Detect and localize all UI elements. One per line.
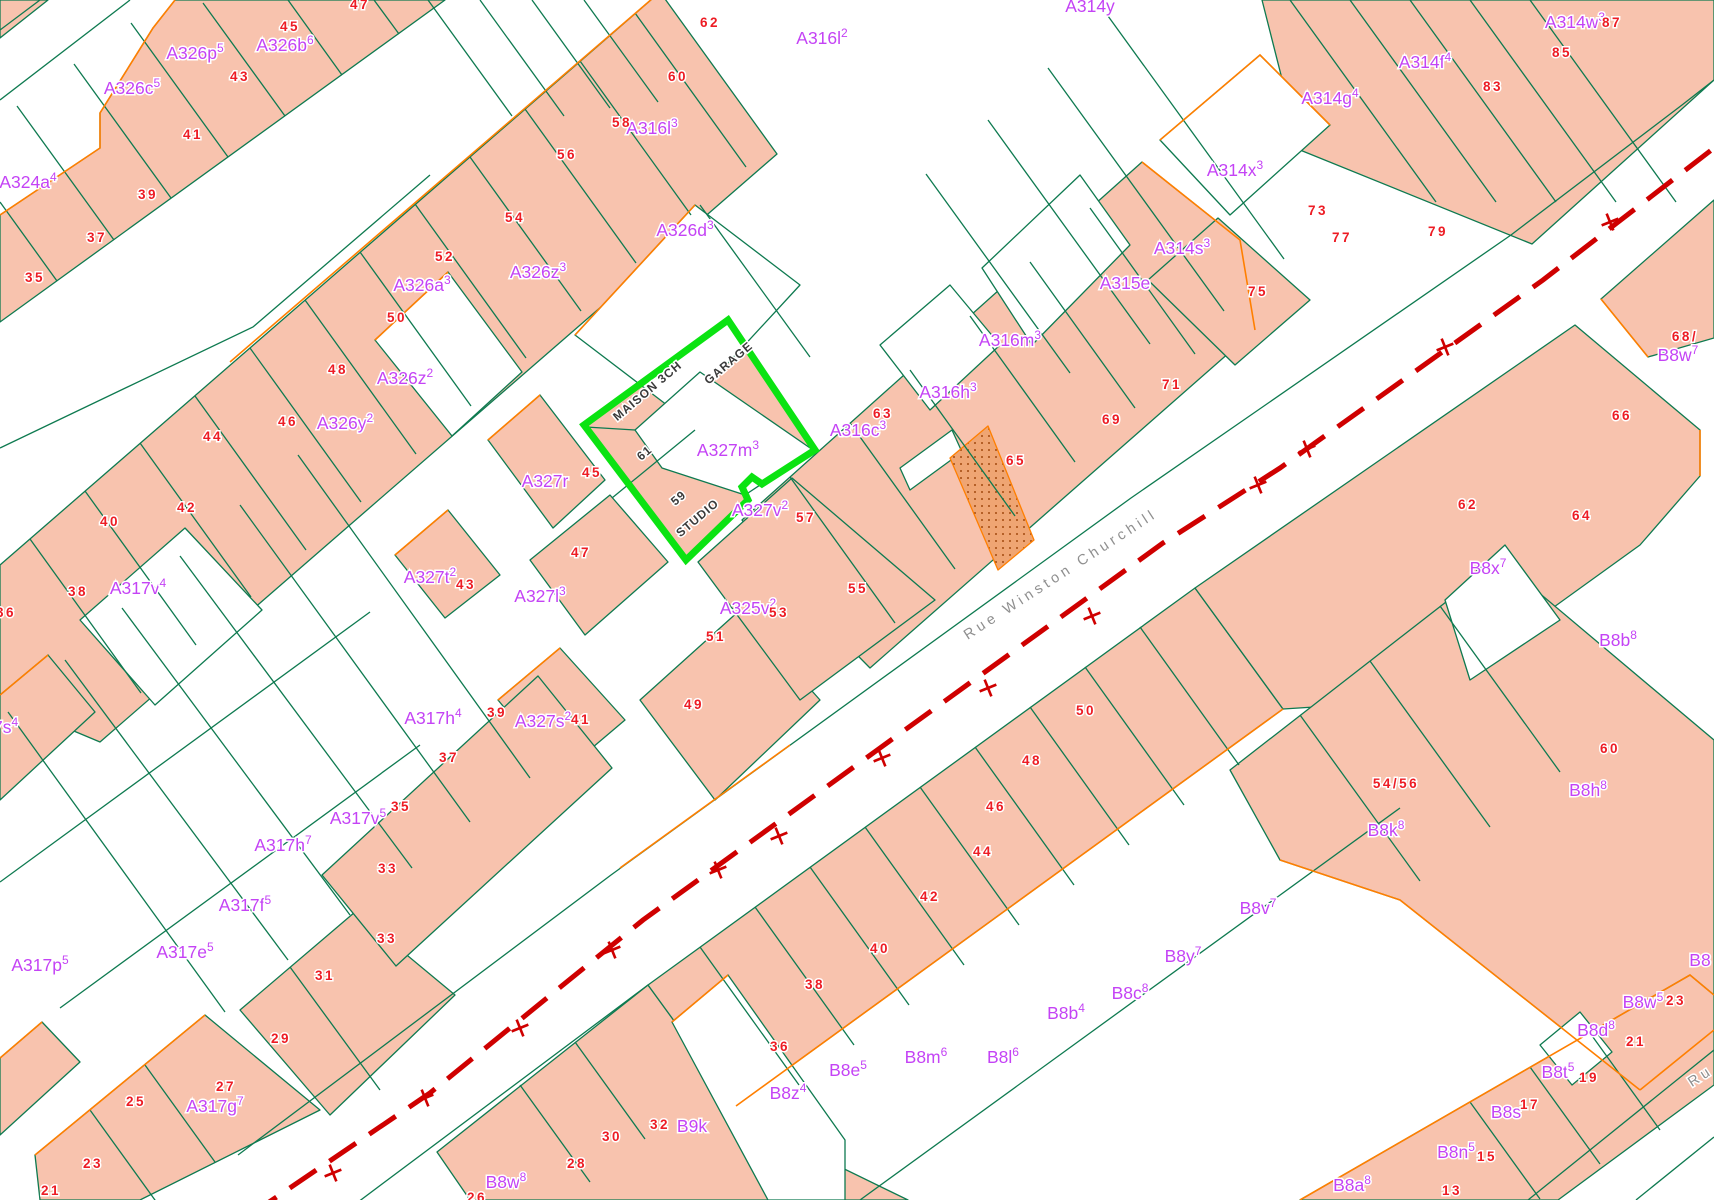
parcel-id-label: A325v2	[720, 596, 777, 618]
house-number: 43	[456, 577, 476, 592]
parcel-id-label: A317p5	[11, 953, 69, 975]
parcel-id-label: A326c5	[104, 76, 161, 98]
house-number: 57	[796, 510, 816, 525]
parcel-id-label: A317v4	[110, 576, 167, 598]
house-number: 60	[668, 69, 688, 84]
house-number: 32	[650, 1117, 670, 1132]
house-number: 55	[848, 581, 868, 596]
parcel-id-label: A327r	[522, 471, 569, 491]
parcel-id-label: A324a4	[0, 170, 57, 192]
house-number: 33	[377, 931, 397, 946]
house-number: 15	[1477, 1149, 1497, 1164]
parcel-id-label: A316l2	[796, 26, 848, 48]
house-number: 23	[1666, 993, 1686, 1008]
house-number: 45	[280, 19, 300, 34]
house-number: 66	[1612, 408, 1632, 423]
parcel-id-label: A326z2	[377, 366, 434, 388]
house-number: 38	[805, 977, 825, 992]
house-number: 54/56	[1373, 776, 1419, 791]
house-number: 46	[278, 414, 298, 429]
house-number: 38	[68, 584, 88, 599]
house-number: 40	[870, 941, 890, 956]
cadastral-map-canvas[interactable]: A324a4A326c5A326p5A326b6A326a3A326z2A326…	[0, 0, 1714, 1200]
house-number: 37	[87, 230, 107, 245]
house-number: 79	[1428, 224, 1448, 239]
house-number: 17	[1520, 1097, 1540, 1112]
house-number: 30	[602, 1129, 622, 1144]
house-number: 36	[770, 1039, 790, 1054]
house-number: 23	[83, 1156, 103, 1171]
parcel-id-label: A327l3	[514, 584, 566, 606]
parcel-id-label: B8s	[1491, 1102, 1521, 1122]
parcel-id-label: A326b6	[256, 33, 314, 55]
house-number: 50	[1076, 703, 1096, 718]
house-number: 48	[328, 362, 348, 377]
house-number: 41	[571, 712, 591, 727]
house-number: 63	[873, 406, 893, 421]
house-number: 25	[126, 1094, 146, 1109]
house-number: 62	[700, 15, 720, 30]
house-number: 33	[378, 861, 398, 876]
house-number: 65	[1006, 453, 1026, 468]
parcel-id-label: A316l3	[626, 116, 678, 138]
parcel-id-label: A326d3	[656, 218, 714, 240]
house-number: 35	[25, 270, 45, 285]
parcel-id-label: A314f4	[1399, 50, 1452, 72]
house-number: 53	[769, 605, 789, 620]
house-number: 44	[203, 429, 223, 444]
house-number: 52	[435, 249, 455, 264]
house-number: 29	[271, 1031, 291, 1046]
parcel-id-label: A317h7	[254, 833, 312, 855]
house-number: 62	[1458, 497, 1478, 512]
house-number: 42	[920, 889, 940, 904]
cadastral-map-viewport[interactable]: A324a4A326c5A326p5A326b6A326a3A326z2A326…	[0, 0, 1714, 1200]
house-number: 21	[41, 1183, 61, 1198]
house-number: 31	[315, 968, 335, 983]
house-number: 71	[1162, 377, 1182, 392]
house-number: 68/	[1672, 329, 1698, 344]
parcel-id-label: B9k	[677, 1116, 707, 1136]
parcel-id-label: A317e5	[156, 940, 214, 962]
parcel-id-label: A327s2	[515, 709, 572, 731]
house-number: 46	[986, 799, 1006, 814]
house-number: 48	[1022, 753, 1042, 768]
house-number: 27	[216, 1079, 236, 1094]
house-number: 35	[391, 799, 411, 814]
house-number: 49	[684, 697, 704, 712]
house-number: 58	[612, 115, 632, 130]
parcel-id-label: A317h4	[404, 706, 462, 728]
parcel-id-label: A327t2	[404, 565, 457, 587]
house-number: 50	[387, 310, 407, 325]
house-number: 47	[350, 0, 370, 12]
parcel-id-label: A314g4	[1301, 86, 1359, 108]
parcel-id-label: A326z3	[510, 260, 567, 282]
house-number: 77	[1332, 230, 1352, 245]
parcel-id-label: A315e	[1100, 273, 1151, 293]
house-number: 21	[1626, 1034, 1646, 1049]
parcel-id-label: A314x3	[1207, 158, 1264, 180]
house-number: 44	[973, 844, 993, 859]
parcel-id-label: A317v5	[330, 806, 387, 828]
house-number: 60	[1600, 741, 1620, 756]
parcel-id-label: A317f5	[219, 893, 272, 915]
house-number: 43	[230, 69, 250, 84]
house-number: 26	[467, 1190, 487, 1200]
parcel-id-label: A314y	[1065, 0, 1115, 16]
parcel-id-label: A317g7	[186, 1094, 244, 1116]
parcel-id-label: A327v2	[732, 498, 789, 520]
parcel-id-label: A326a3	[393, 273, 451, 295]
house-number: 54	[505, 210, 525, 225]
house-number: 85	[1552, 45, 1572, 60]
parcel-id-label: A314s3	[1154, 236, 1211, 258]
house-number: 41	[183, 127, 203, 142]
house-number: 37	[439, 750, 459, 765]
parcel-id-label: A316c3	[830, 418, 887, 440]
house-number: 56	[557, 147, 577, 162]
house-number: 42	[177, 500, 197, 515]
house-number: 28	[567, 1156, 587, 1171]
house-number: 64	[1572, 508, 1592, 523]
house-number: 39	[138, 187, 158, 202]
house-number: 13	[1442, 1183, 1462, 1198]
parcel-id-label: A326y2	[317, 411, 374, 433]
parcel-id-label: A314w3	[1545, 10, 1606, 32]
house-number: 83	[1483, 79, 1503, 94]
house-number: 47	[571, 545, 591, 560]
parcel-id-label: A327m3	[697, 438, 759, 460]
house-number: 40	[100, 514, 120, 529]
house-number: 51	[706, 629, 726, 644]
house-number: 19	[1579, 1070, 1599, 1085]
house-number: 87	[1602, 15, 1622, 30]
parcel-id-label: A316h3	[919, 380, 977, 402]
house-number: 45	[582, 465, 602, 480]
house-number: 36	[0, 605, 16, 620]
house-number: 73	[1308, 203, 1328, 218]
parcel-id-label: A326p5	[166, 41, 224, 63]
house-number: 69	[1102, 412, 1122, 427]
house-number: 75	[1248, 284, 1268, 299]
house-number: 39	[487, 705, 507, 720]
parcel-id-label: A316m3	[979, 328, 1041, 350]
parcel-id-label: B8	[1689, 950, 1710, 970]
